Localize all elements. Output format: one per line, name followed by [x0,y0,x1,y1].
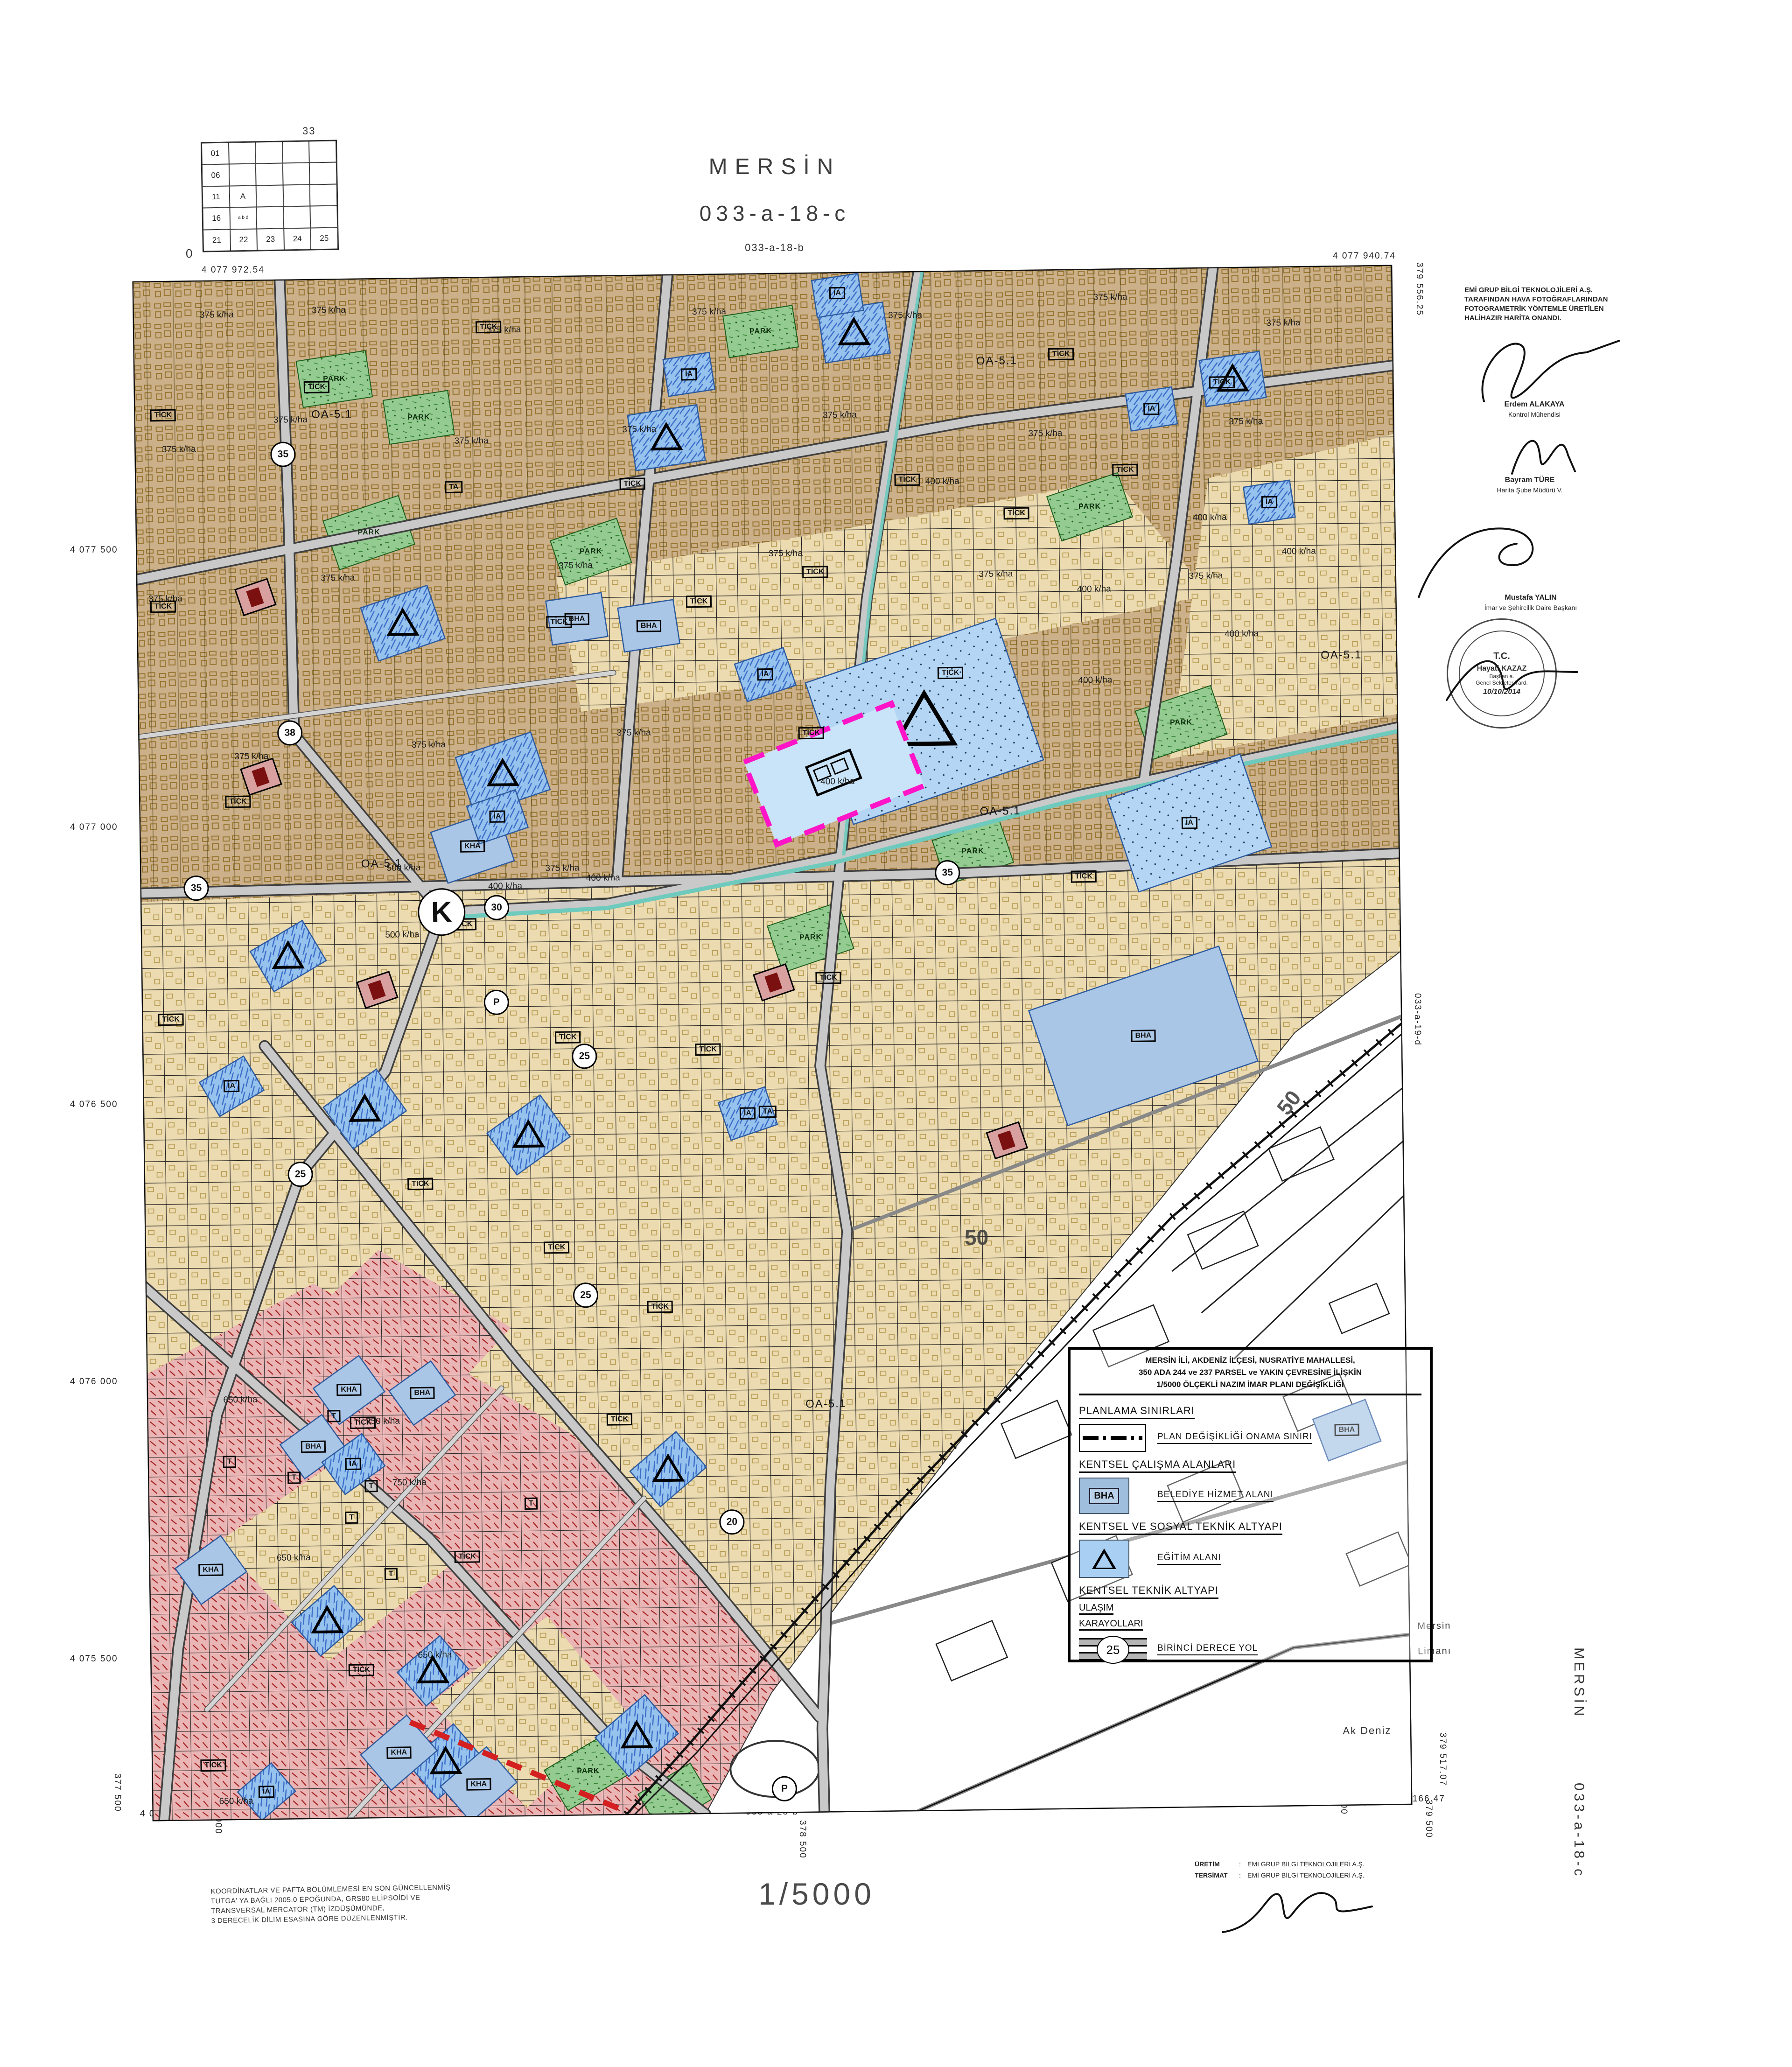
education-triangle-icon [1092,1548,1116,1569]
index-grid-cell [255,142,282,164]
coord-right-top: 379 556.25 [1414,262,1424,316]
signatory-2-title: Harita Şube Müdürü V. [1469,486,1590,494]
official-stamp: T.C. Hayati KAZAZ Başkan a. Genel Sekret… [1447,618,1557,729]
index-grid-cell [229,142,256,164]
index-grid-cell [256,163,283,185]
grid-label-e5: 379 500 [1423,1800,1434,1838]
education-symbol [1079,1540,1129,1578]
index-grid-cell: 24 [284,228,311,250]
legend-title: MERSİN İLİ, AKDENİZ İLÇESİ, NUSRATİYE MA… [1079,1354,1421,1395]
sheet-index-grid: 010611A16a b d2122232425 [201,140,339,252]
page-title: MERSİN [667,154,882,180]
index-grid-cell [257,207,284,229]
index-grid-cell [229,164,256,186]
grid-label-n3: 4 076 500 [70,1100,118,1110]
index-grid-cell: a b d [230,207,257,229]
legend-title-line-1: MERSİN İLİ, AKDENİZ İLÇESİ, NUSRATİYE MA… [1079,1354,1421,1366]
legend-label-boundary: PLAN DEĞİŞİKLİĞİ ONAMA SINIRI [1157,1432,1312,1444]
side-label-sheet: 033-a-18-c [1571,1783,1587,1878]
index-grid-cell [309,141,336,163]
signature-yalin [1409,518,1577,602]
index-grid-cell: 06 [202,164,229,186]
signatory-2-name: Bayram TÜRE [1469,476,1590,484]
road-number-oval: 25 [1097,1636,1129,1664]
production-credits: ÜRETİM : EMİ GRUP BİLGİ TEKNOLOJİLERİ A.… [1195,1858,1365,1881]
plan-boundary-symbol [1079,1424,1146,1452]
production-label-1: ÜRETİM [1195,1858,1239,1870]
index-grid-cell: 25 [311,227,338,249]
grid-label-n4: 4 076 000 [70,1377,118,1387]
map-scale: 1/5000 [719,1876,915,1912]
index-grid-cell [283,184,310,206]
signature-production [1213,1881,1381,1941]
legend-heading-work-areas: KENTSEL ÇALIŞMA ALANLARI [1079,1458,1236,1473]
index-grid-cell: 23 [257,228,284,250]
approval-line-4: HALİHAZIR HARİTA ONANDI. [1464,314,1726,323]
index-grid-cell: 11 [203,186,230,208]
index-grid-cell [256,185,283,207]
coord-top-right: 4 077 940.74 [1333,251,1396,261]
first-degree-road-symbol: 25 [1079,1635,1147,1663]
legend-heading-planning-limits: PLANLAMA SINIRLARI [1079,1405,1195,1419]
production-value-2: EMİ GRUP BİLGİ TEKNOLOJİLERİ A.Ş. [1247,1870,1365,1881]
approval-line-2: TARAFINDAN HAVA FOTOĞRAFLARINDAN [1464,295,1726,304]
approval-line-1: EMİ GRUP BİLGİ TEKNOLOJİLERİ A.Ş. [1464,286,1726,295]
sheet-number: 033-a-18-c [639,201,910,226]
signatory-1-name: Erdem ALAKAYA [1474,400,1595,409]
index-grid-cell: 01 [202,143,229,165]
legend-label-bha: BELEDİYE HİZMET ALANI [1157,1490,1274,1502]
legend-label-first-degree-road: BİRİNCİ DERECE YOL [1157,1643,1258,1655]
grid-label-n2: 4 077 000 [70,822,118,833]
legend-title-line-3: 1/5000 ÖLÇEKLİ NAZIM İMAR PLANI DEĞİŞİKL… [1079,1379,1421,1391]
legend-subheading-ulasim: ULAŞIM [1079,1603,1113,1615]
grid-label-n1: 4 077 500 [70,545,118,555]
index-grid-cell [310,184,337,206]
neighbor-sheet-right: 033-a-19-d [1412,993,1422,1046]
index-grid-cell [309,162,336,184]
index-grid-cell [310,206,337,228]
grid-label-e3: 378 500 [797,1820,807,1859]
index-grid-cell [283,163,310,185]
index-grid-cell [282,141,309,163]
legend-subheading-karayollari: KARAYOLLARI [1079,1619,1143,1631]
production-label-2: TERSİMAT [1195,1870,1239,1881]
legend-label-education: EĞİTİM ALANI [1157,1553,1221,1565]
index-grid-label-bottom: 0 [186,246,193,261]
coord-top-left: 4 077 972.54 [202,265,265,275]
neighbor-sheet-top: 033-a-18-b [695,242,854,254]
index-grid-cell [283,206,310,228]
stamp-tc: T.C. [1493,651,1510,662]
projection-note: KOORDİNATLAR VE PAFTA BÖLÜMLEMESİ EN SON… [210,1883,451,1926]
signatory-3-title: İmar ve Şehircilik Daire Başkanı [1447,604,1615,611]
stamp-name: Hayati KAZAZ [1477,665,1527,673]
coord-right-bottom: 379 517.07 [1437,1732,1448,1786]
approval-note: EMİ GRUP BİLGİ TEKNOLOJİLERİ A.Ş. TARAFI… [1464,286,1726,323]
index-grid-cell: 21 [203,229,230,251]
bha-symbol-text: BHA [1089,1488,1119,1504]
production-value-1: EMİ GRUP BİLGİ TEKNOLOJİLERİ A.Ş. [1247,1858,1365,1870]
index-grid-label-top: 33 [302,125,315,137]
grid-label-e1: 377 500 [112,1773,122,1812]
legend-title-line-2: 350 ADA 244 ve 237 PARSEL ve YAKIN ÇEVRE… [1079,1366,1421,1379]
index-grid-cell: 22 [230,229,257,251]
index-grid-cell: A [229,185,256,207]
bha-symbol: BHA [1079,1478,1129,1514]
stamp-title-2: Genel Sekreter Yard. [1476,680,1528,686]
legend-box: MERSİN İLİ, AKDENİZ İLÇESİ, NUSRATİYE MA… [1068,1347,1433,1662]
legend-heading-social-infra: KENTSEL VE SOSYAL TEKNİK ALTYAPI [1079,1520,1282,1535]
index-grid-cell: 16 [203,208,230,230]
stamp-title-1: Başkan a. [1489,673,1514,680]
stamp-date: 10/10/2014 [1483,688,1520,696]
scanned-plan-sheet: { "title_block": {"city": "MERSİN", "she… [0,0,1792,2067]
approval-line-3: FOTOGRAMETRİK YÖNTEMLE ÜRETİLEN [1464,304,1726,314]
side-label-city: MERSİN [1571,1647,1587,1719]
signatory-3-name: Mustafa YALIN [1461,594,1601,602]
legend-heading-technical-infra: KENTSEL TEKNİK ALTYAPI [1079,1584,1218,1599]
grid-label-n5: 4 075 500 [70,1654,118,1664]
signature-ture [1493,429,1633,481]
signatory-1-title: Kontrol Mühendisi [1474,411,1595,418]
